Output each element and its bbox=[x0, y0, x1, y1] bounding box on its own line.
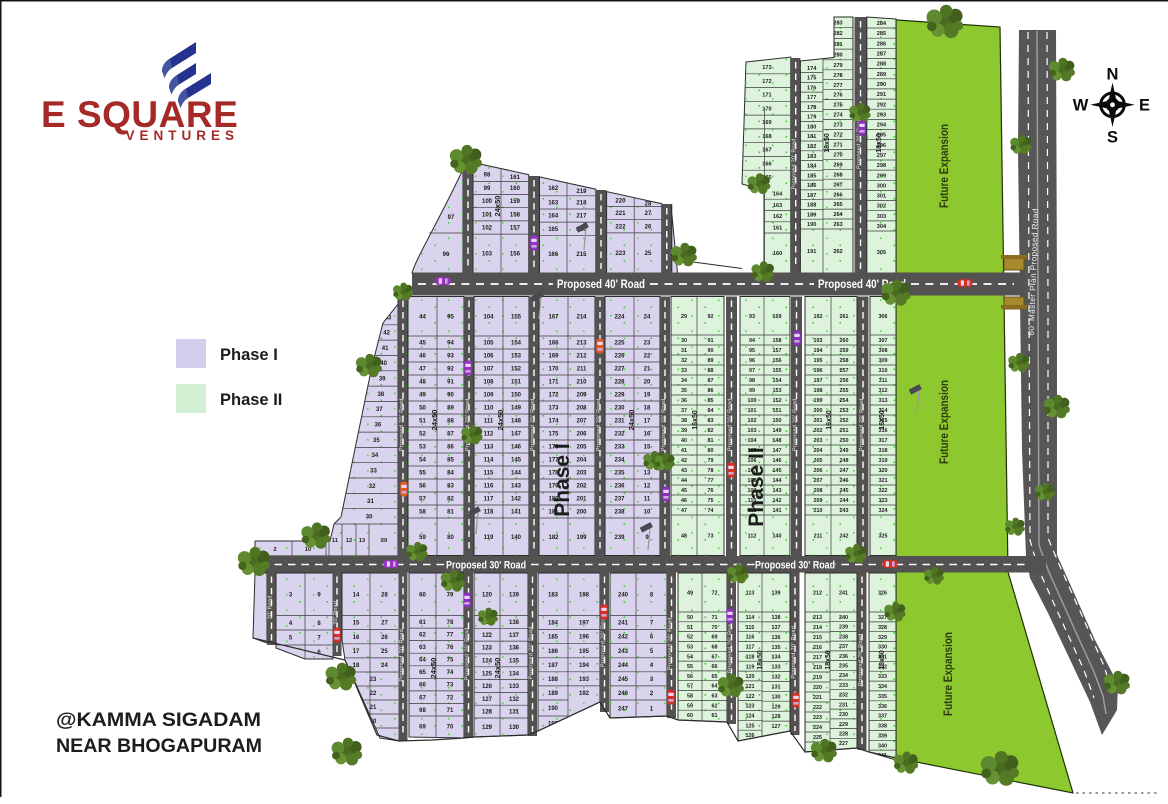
svg-text:168: 168 bbox=[762, 134, 771, 140]
svg-text:60: 60 bbox=[687, 713, 693, 719]
svg-text:107: 107 bbox=[483, 367, 494, 373]
svg-text:181: 181 bbox=[807, 134, 816, 140]
svg-text:44: 44 bbox=[681, 478, 687, 484]
svg-text:Proposed 20' Road: Proposed 20' Road bbox=[661, 398, 667, 451]
svg-text:222: 222 bbox=[615, 224, 626, 230]
svg-text:Proposed 20' Road: Proposed 20' Road bbox=[399, 629, 405, 682]
svg-text:302: 302 bbox=[877, 204, 886, 210]
svg-text:236: 236 bbox=[614, 484, 625, 490]
svg-text:155: 155 bbox=[511, 314, 522, 320]
svg-text:174: 174 bbox=[548, 419, 559, 425]
svg-text:162: 162 bbox=[548, 186, 559, 192]
svg-text:82: 82 bbox=[447, 497, 454, 503]
svg-text:139: 139 bbox=[509, 592, 520, 598]
svg-text:194: 194 bbox=[579, 663, 590, 669]
svg-text:10: 10 bbox=[644, 510, 651, 516]
svg-text:48: 48 bbox=[681, 533, 687, 539]
svg-text:Proposed 30' Road: Proposed 30' Road bbox=[755, 559, 835, 571]
svg-text:79: 79 bbox=[708, 458, 714, 464]
svg-text:25: 25 bbox=[645, 251, 652, 257]
svg-text:221: 221 bbox=[615, 211, 626, 217]
svg-text:161: 161 bbox=[773, 226, 782, 232]
svg-text:Phase II: Phase II bbox=[220, 391, 282, 409]
svg-text:184: 184 bbox=[807, 164, 817, 170]
svg-text:26: 26 bbox=[381, 635, 388, 641]
svg-text:73: 73 bbox=[447, 683, 454, 689]
svg-text:Proposed 20' Road: Proposed 20' Road bbox=[668, 617, 674, 670]
svg-text:35: 35 bbox=[681, 388, 687, 394]
svg-text:183: 183 bbox=[548, 592, 559, 598]
svg-text:59: 59 bbox=[687, 703, 693, 709]
svg-text:68: 68 bbox=[712, 645, 718, 651]
svg-text:186: 186 bbox=[548, 649, 559, 655]
svg-text:175: 175 bbox=[807, 76, 816, 82]
svg-text:112: 112 bbox=[748, 533, 757, 539]
svg-text:156: 156 bbox=[773, 358, 782, 364]
svg-text:70: 70 bbox=[712, 625, 718, 631]
svg-text:91: 91 bbox=[708, 338, 714, 344]
svg-text:136: 136 bbox=[772, 635, 781, 641]
svg-text:58: 58 bbox=[687, 694, 693, 700]
svg-text:57: 57 bbox=[687, 684, 693, 690]
svg-text:225: 225 bbox=[614, 341, 625, 347]
svg-text:202: 202 bbox=[576, 484, 587, 490]
svg-text:43: 43 bbox=[681, 468, 687, 474]
svg-text:10: 10 bbox=[305, 547, 311, 553]
svg-text:214: 214 bbox=[576, 314, 587, 320]
svg-text:95: 95 bbox=[447, 314, 454, 320]
svg-text:36: 36 bbox=[681, 398, 687, 404]
svg-text:29: 29 bbox=[381, 538, 387, 544]
svg-text:247: 247 bbox=[618, 707, 629, 713]
svg-text:143: 143 bbox=[773, 488, 782, 494]
svg-text:106: 106 bbox=[483, 354, 494, 360]
svg-text:239: 239 bbox=[839, 625, 848, 631]
svg-text:91: 91 bbox=[447, 380, 454, 386]
svg-text:60: 60 bbox=[419, 592, 426, 598]
svg-text:147: 147 bbox=[773, 448, 782, 454]
svg-text:176: 176 bbox=[807, 85, 816, 91]
svg-text:Future Expansion: Future Expansion bbox=[939, 380, 951, 464]
svg-text:63: 63 bbox=[712, 694, 718, 700]
svg-text:53: 53 bbox=[419, 445, 426, 451]
svg-text:321: 321 bbox=[879, 478, 888, 484]
svg-text:64: 64 bbox=[419, 658, 426, 664]
svg-text:135: 135 bbox=[772, 645, 781, 651]
svg-text:310: 310 bbox=[879, 368, 888, 374]
svg-text:293: 293 bbox=[877, 112, 886, 118]
svg-text:121: 121 bbox=[746, 684, 755, 690]
svg-text:300: 300 bbox=[877, 183, 886, 189]
svg-text:56: 56 bbox=[687, 674, 693, 680]
svg-text:318: 318 bbox=[879, 448, 888, 454]
svg-text:97: 97 bbox=[448, 215, 455, 221]
svg-text:86: 86 bbox=[447, 445, 454, 451]
svg-text:20' Road: 20' Road bbox=[268, 595, 274, 619]
svg-text:304: 304 bbox=[877, 224, 887, 230]
svg-text:306: 306 bbox=[879, 314, 888, 320]
svg-text:71: 71 bbox=[447, 708, 454, 714]
svg-text:200: 200 bbox=[814, 408, 823, 414]
svg-text:12: 12 bbox=[346, 538, 352, 544]
svg-text:45: 45 bbox=[681, 488, 687, 494]
svg-text:128: 128 bbox=[482, 710, 493, 716]
svg-text:141: 141 bbox=[511, 510, 522, 516]
svg-text:228: 228 bbox=[614, 380, 625, 386]
svg-text:20' Road: 20' Road bbox=[333, 601, 339, 625]
svg-text:52: 52 bbox=[419, 432, 426, 438]
svg-text:89: 89 bbox=[708, 358, 714, 364]
svg-text:21: 21 bbox=[644, 367, 651, 373]
svg-text:185: 185 bbox=[807, 173, 816, 179]
svg-text:11: 11 bbox=[332, 538, 338, 544]
svg-text:166: 166 bbox=[762, 161, 771, 167]
svg-text:246: 246 bbox=[618, 691, 629, 697]
svg-text:78: 78 bbox=[708, 468, 714, 474]
svg-text:Phase I: Phase I bbox=[551, 443, 574, 517]
svg-text:17: 17 bbox=[644, 419, 651, 425]
svg-text:NEAR BHOGAPURAM: NEAR BHOGAPURAM bbox=[56, 735, 262, 757]
svg-text:28: 28 bbox=[381, 592, 388, 598]
svg-text:124: 124 bbox=[746, 714, 755, 720]
svg-text:156: 156 bbox=[510, 252, 521, 258]
svg-text:154: 154 bbox=[773, 378, 782, 384]
svg-text:298: 298 bbox=[877, 163, 886, 169]
svg-text:103: 103 bbox=[482, 252, 493, 258]
svg-text:146: 146 bbox=[511, 445, 522, 451]
svg-text:173: 173 bbox=[548, 406, 559, 412]
svg-text:119: 119 bbox=[484, 535, 494, 541]
svg-text:264: 264 bbox=[833, 212, 843, 218]
svg-text:223: 223 bbox=[813, 715, 822, 721]
svg-text:16x50: 16x50 bbox=[826, 410, 833, 430]
svg-text:253: 253 bbox=[840, 408, 849, 414]
svg-text:164: 164 bbox=[548, 214, 559, 220]
svg-text:244: 244 bbox=[840, 498, 849, 504]
svg-text:213: 213 bbox=[576, 341, 587, 347]
svg-text:62: 62 bbox=[419, 632, 426, 638]
svg-text:246: 246 bbox=[840, 478, 849, 484]
svg-text:164: 164 bbox=[773, 192, 783, 198]
svg-text:171: 171 bbox=[548, 380, 559, 386]
svg-text:158: 158 bbox=[773, 338, 782, 344]
svg-text:179: 179 bbox=[807, 115, 816, 121]
svg-text:216: 216 bbox=[813, 645, 822, 651]
svg-text:274: 274 bbox=[833, 113, 843, 119]
svg-text:16: 16 bbox=[644, 432, 651, 438]
svg-text:113: 113 bbox=[746, 591, 755, 597]
svg-text:163: 163 bbox=[773, 203, 782, 209]
svg-text:167: 167 bbox=[762, 148, 771, 154]
svg-text:196: 196 bbox=[814, 368, 823, 374]
svg-text:Proposed 20' Road: Proposed 20' Road bbox=[530, 398, 536, 451]
svg-text:84: 84 bbox=[708, 408, 714, 414]
svg-text:275: 275 bbox=[833, 103, 842, 109]
svg-text:116: 116 bbox=[484, 484, 494, 490]
svg-text:206: 206 bbox=[576, 432, 587, 438]
svg-text:203: 203 bbox=[576, 471, 587, 477]
svg-text:Proposed 20' Road: Proposed 20' Road bbox=[465, 627, 471, 680]
svg-text:155: 155 bbox=[773, 368, 782, 374]
svg-text:@KAMMA SIGADAM: @KAMMA SIGADAM bbox=[56, 709, 261, 731]
svg-text:286: 286 bbox=[877, 41, 886, 47]
svg-text:242: 242 bbox=[840, 533, 849, 539]
svg-text:34: 34 bbox=[681, 378, 687, 384]
svg-text:33: 33 bbox=[681, 368, 687, 374]
svg-text:Proposed 20' Road: Proposed 20' Road bbox=[728, 620, 734, 673]
svg-text:227: 227 bbox=[614, 367, 625, 373]
svg-text:273: 273 bbox=[833, 123, 842, 129]
svg-text:61: 61 bbox=[419, 620, 426, 626]
svg-text:62: 62 bbox=[712, 703, 718, 709]
svg-text:30: 30 bbox=[366, 514, 373, 520]
svg-text:75: 75 bbox=[708, 498, 714, 504]
svg-text:116: 116 bbox=[746, 635, 755, 641]
svg-text:159: 159 bbox=[773, 314, 782, 320]
svg-text:13: 13 bbox=[359, 538, 365, 544]
svg-text:340: 340 bbox=[878, 743, 887, 749]
svg-text:112: 112 bbox=[484, 432, 494, 438]
svg-text:227: 227 bbox=[839, 741, 848, 747]
svg-text:100: 100 bbox=[748, 398, 757, 404]
svg-text:98: 98 bbox=[484, 172, 491, 178]
svg-text:130: 130 bbox=[509, 725, 520, 731]
svg-text:210: 210 bbox=[576, 380, 587, 386]
svg-text:190: 190 bbox=[807, 222, 816, 228]
svg-text:23: 23 bbox=[370, 677, 377, 683]
svg-text:24: 24 bbox=[644, 314, 651, 320]
svg-text:248: 248 bbox=[840, 458, 849, 464]
svg-text:129: 129 bbox=[482, 725, 493, 731]
svg-text:131: 131 bbox=[509, 710, 520, 716]
svg-text:282: 282 bbox=[833, 31, 842, 37]
svg-text:197: 197 bbox=[579, 621, 590, 627]
svg-text:232: 232 bbox=[839, 693, 848, 699]
svg-text:24x50: 24x50 bbox=[493, 658, 502, 679]
svg-text:190: 190 bbox=[548, 706, 559, 712]
svg-text:15: 15 bbox=[644, 445, 651, 451]
svg-text:211: 211 bbox=[814, 533, 823, 539]
svg-text:219: 219 bbox=[576, 189, 587, 195]
svg-text:193: 193 bbox=[579, 677, 590, 683]
svg-text:24: 24 bbox=[381, 663, 388, 669]
svg-text:241: 241 bbox=[839, 591, 848, 597]
svg-text:66: 66 bbox=[712, 664, 718, 670]
svg-text:256: 256 bbox=[840, 378, 849, 384]
svg-text:328: 328 bbox=[878, 625, 887, 631]
svg-text:209: 209 bbox=[576, 393, 587, 399]
svg-text:301: 301 bbox=[877, 194, 886, 200]
svg-text:160: 160 bbox=[510, 186, 521, 192]
svg-text:240: 240 bbox=[618, 592, 629, 598]
svg-text:79: 79 bbox=[447, 592, 454, 598]
svg-text:235: 235 bbox=[614, 471, 625, 477]
svg-text:189: 189 bbox=[807, 212, 816, 218]
svg-text:157: 157 bbox=[510, 226, 521, 232]
svg-text:333: 333 bbox=[878, 674, 887, 680]
svg-text:Proposed 20' Road: Proposed 20' Road bbox=[858, 633, 864, 686]
svg-text:27: 27 bbox=[645, 211, 652, 217]
svg-text:198: 198 bbox=[579, 592, 590, 598]
svg-text:37: 37 bbox=[681, 408, 687, 414]
svg-text:171: 171 bbox=[762, 93, 771, 99]
svg-text:18: 18 bbox=[644, 406, 651, 412]
svg-text:27: 27 bbox=[381, 621, 388, 627]
svg-text:S: S bbox=[1107, 129, 1118, 147]
svg-text:237: 237 bbox=[839, 644, 848, 650]
svg-text:287: 287 bbox=[877, 52, 886, 58]
svg-text:113: 113 bbox=[484, 445, 494, 451]
svg-text:277: 277 bbox=[833, 83, 842, 89]
svg-text:144: 144 bbox=[511, 471, 522, 477]
svg-text:142: 142 bbox=[511, 497, 522, 503]
svg-text:170: 170 bbox=[548, 367, 559, 373]
svg-text:76: 76 bbox=[708, 488, 714, 494]
svg-text:55: 55 bbox=[687, 664, 693, 670]
svg-text:130: 130 bbox=[772, 694, 781, 700]
svg-text:204: 204 bbox=[814, 448, 823, 454]
svg-text:182: 182 bbox=[807, 144, 816, 150]
svg-text:132: 132 bbox=[772, 675, 781, 681]
svg-text:14: 14 bbox=[353, 592, 360, 598]
svg-text:Proposed 20' Road: Proposed 20' Road bbox=[859, 398, 865, 451]
svg-text:115: 115 bbox=[746, 625, 755, 631]
svg-text:2: 2 bbox=[273, 547, 276, 553]
svg-text:191: 191 bbox=[807, 249, 816, 255]
svg-text:183: 183 bbox=[807, 154, 816, 160]
svg-text:45: 45 bbox=[419, 341, 426, 347]
svg-text:84: 84 bbox=[447, 471, 454, 477]
svg-text:Future Expansion: Future Expansion bbox=[943, 632, 955, 716]
svg-text:281: 281 bbox=[833, 42, 842, 48]
svg-text:123: 123 bbox=[746, 704, 755, 710]
svg-text:323: 323 bbox=[879, 498, 888, 504]
svg-text:212: 212 bbox=[813, 591, 822, 597]
svg-text:192: 192 bbox=[579, 691, 590, 697]
svg-text:18x50: 18x50 bbox=[757, 650, 764, 670]
svg-text:49: 49 bbox=[687, 591, 693, 597]
svg-text:249: 249 bbox=[840, 448, 849, 454]
svg-text:18x50: 18x50 bbox=[824, 133, 831, 153]
svg-text:334: 334 bbox=[878, 684, 887, 690]
svg-text:239: 239 bbox=[614, 535, 625, 541]
svg-text:214: 214 bbox=[813, 625, 822, 631]
svg-text:262: 262 bbox=[833, 249, 842, 255]
svg-text:254: 254 bbox=[840, 398, 849, 404]
svg-text:64: 64 bbox=[712, 684, 718, 690]
svg-text:208: 208 bbox=[814, 488, 823, 494]
svg-text:151: 151 bbox=[511, 380, 522, 386]
svg-text:99: 99 bbox=[484, 186, 491, 192]
svg-text:124: 124 bbox=[482, 658, 493, 664]
svg-text:75: 75 bbox=[447, 658, 454, 664]
svg-text:32: 32 bbox=[681, 358, 687, 364]
svg-text:326: 326 bbox=[878, 591, 887, 597]
svg-text:292: 292 bbox=[877, 102, 886, 108]
svg-text:169: 169 bbox=[548, 354, 559, 360]
svg-text:Proposed 20' Road: Proposed 20' Road bbox=[399, 398, 405, 451]
svg-text:252: 252 bbox=[840, 418, 849, 424]
svg-text:278: 278 bbox=[833, 73, 842, 79]
svg-text:24x50: 24x50 bbox=[430, 410, 439, 431]
svg-text:25: 25 bbox=[381, 649, 388, 655]
svg-text:66: 66 bbox=[419, 683, 426, 689]
svg-text:46: 46 bbox=[681, 498, 687, 504]
svg-text:243: 243 bbox=[840, 508, 849, 514]
svg-text:41: 41 bbox=[681, 448, 687, 454]
svg-text:325: 325 bbox=[879, 533, 888, 539]
svg-text:236: 236 bbox=[839, 654, 848, 660]
svg-text:115: 115 bbox=[484, 471, 494, 477]
svg-text:36: 36 bbox=[375, 423, 382, 429]
svg-text:133: 133 bbox=[509, 684, 520, 690]
svg-text:205: 205 bbox=[814, 458, 823, 464]
svg-text:150: 150 bbox=[511, 393, 522, 399]
svg-text:147: 147 bbox=[511, 432, 522, 438]
svg-text:161: 161 bbox=[510, 175, 521, 181]
svg-text:238: 238 bbox=[839, 634, 848, 640]
svg-text:24x50: 24x50 bbox=[493, 196, 502, 217]
svg-text:67: 67 bbox=[712, 654, 718, 660]
svg-text:231: 231 bbox=[839, 702, 848, 708]
svg-text:234: 234 bbox=[614, 458, 625, 464]
svg-text:56: 56 bbox=[419, 484, 426, 490]
svg-text:102: 102 bbox=[748, 418, 757, 424]
svg-text:93: 93 bbox=[447, 354, 454, 360]
svg-text:16x50: 16x50 bbox=[879, 410, 886, 430]
svg-text:140: 140 bbox=[511, 535, 522, 541]
svg-text:139: 139 bbox=[772, 591, 781, 597]
svg-text:24x50: 24x50 bbox=[496, 410, 505, 431]
svg-text:220: 220 bbox=[813, 685, 822, 691]
svg-text:233: 233 bbox=[614, 445, 625, 451]
svg-text:251: 251 bbox=[840, 428, 849, 434]
svg-text:85: 85 bbox=[447, 458, 454, 464]
svg-text:137: 137 bbox=[772, 625, 781, 631]
svg-text:338: 338 bbox=[878, 724, 887, 730]
svg-text:230: 230 bbox=[614, 406, 625, 412]
svg-text:201: 201 bbox=[576, 497, 587, 503]
svg-text:35: 35 bbox=[373, 438, 380, 444]
svg-text:184: 184 bbox=[548, 621, 559, 627]
svg-text:90: 90 bbox=[708, 348, 714, 354]
svg-text:80: 80 bbox=[708, 448, 714, 454]
svg-text:50: 50 bbox=[419, 406, 426, 412]
svg-text:238: 238 bbox=[614, 510, 625, 516]
svg-text:151: 151 bbox=[773, 408, 782, 414]
svg-text:218: 218 bbox=[576, 201, 587, 207]
svg-text:202: 202 bbox=[814, 428, 823, 434]
svg-text:Proposed 30' Road: Proposed 30' Road bbox=[446, 559, 526, 571]
svg-text:Proposed 20' Road: Proposed 20' Road bbox=[728, 398, 734, 451]
svg-text:46: 46 bbox=[419, 354, 426, 360]
svg-text:53: 53 bbox=[687, 645, 693, 651]
svg-text:210: 210 bbox=[814, 508, 823, 514]
svg-text:Proposed 20' Road: Proposed 20' Road bbox=[596, 398, 602, 451]
svg-text:133: 133 bbox=[772, 665, 781, 671]
svg-text:38: 38 bbox=[377, 392, 384, 398]
svg-text:127: 127 bbox=[482, 697, 493, 703]
svg-text:311: 311 bbox=[879, 378, 888, 384]
svg-text:337: 337 bbox=[878, 714, 887, 720]
svg-text:283: 283 bbox=[833, 21, 842, 27]
svg-text:19: 19 bbox=[644, 393, 651, 399]
svg-text:103: 103 bbox=[748, 428, 757, 434]
svg-text:Proposed 20' Road: Proposed 20' Road bbox=[601, 614, 607, 667]
svg-text:185: 185 bbox=[548, 635, 559, 641]
svg-text:118: 118 bbox=[484, 510, 494, 516]
svg-text:221: 221 bbox=[813, 695, 822, 701]
